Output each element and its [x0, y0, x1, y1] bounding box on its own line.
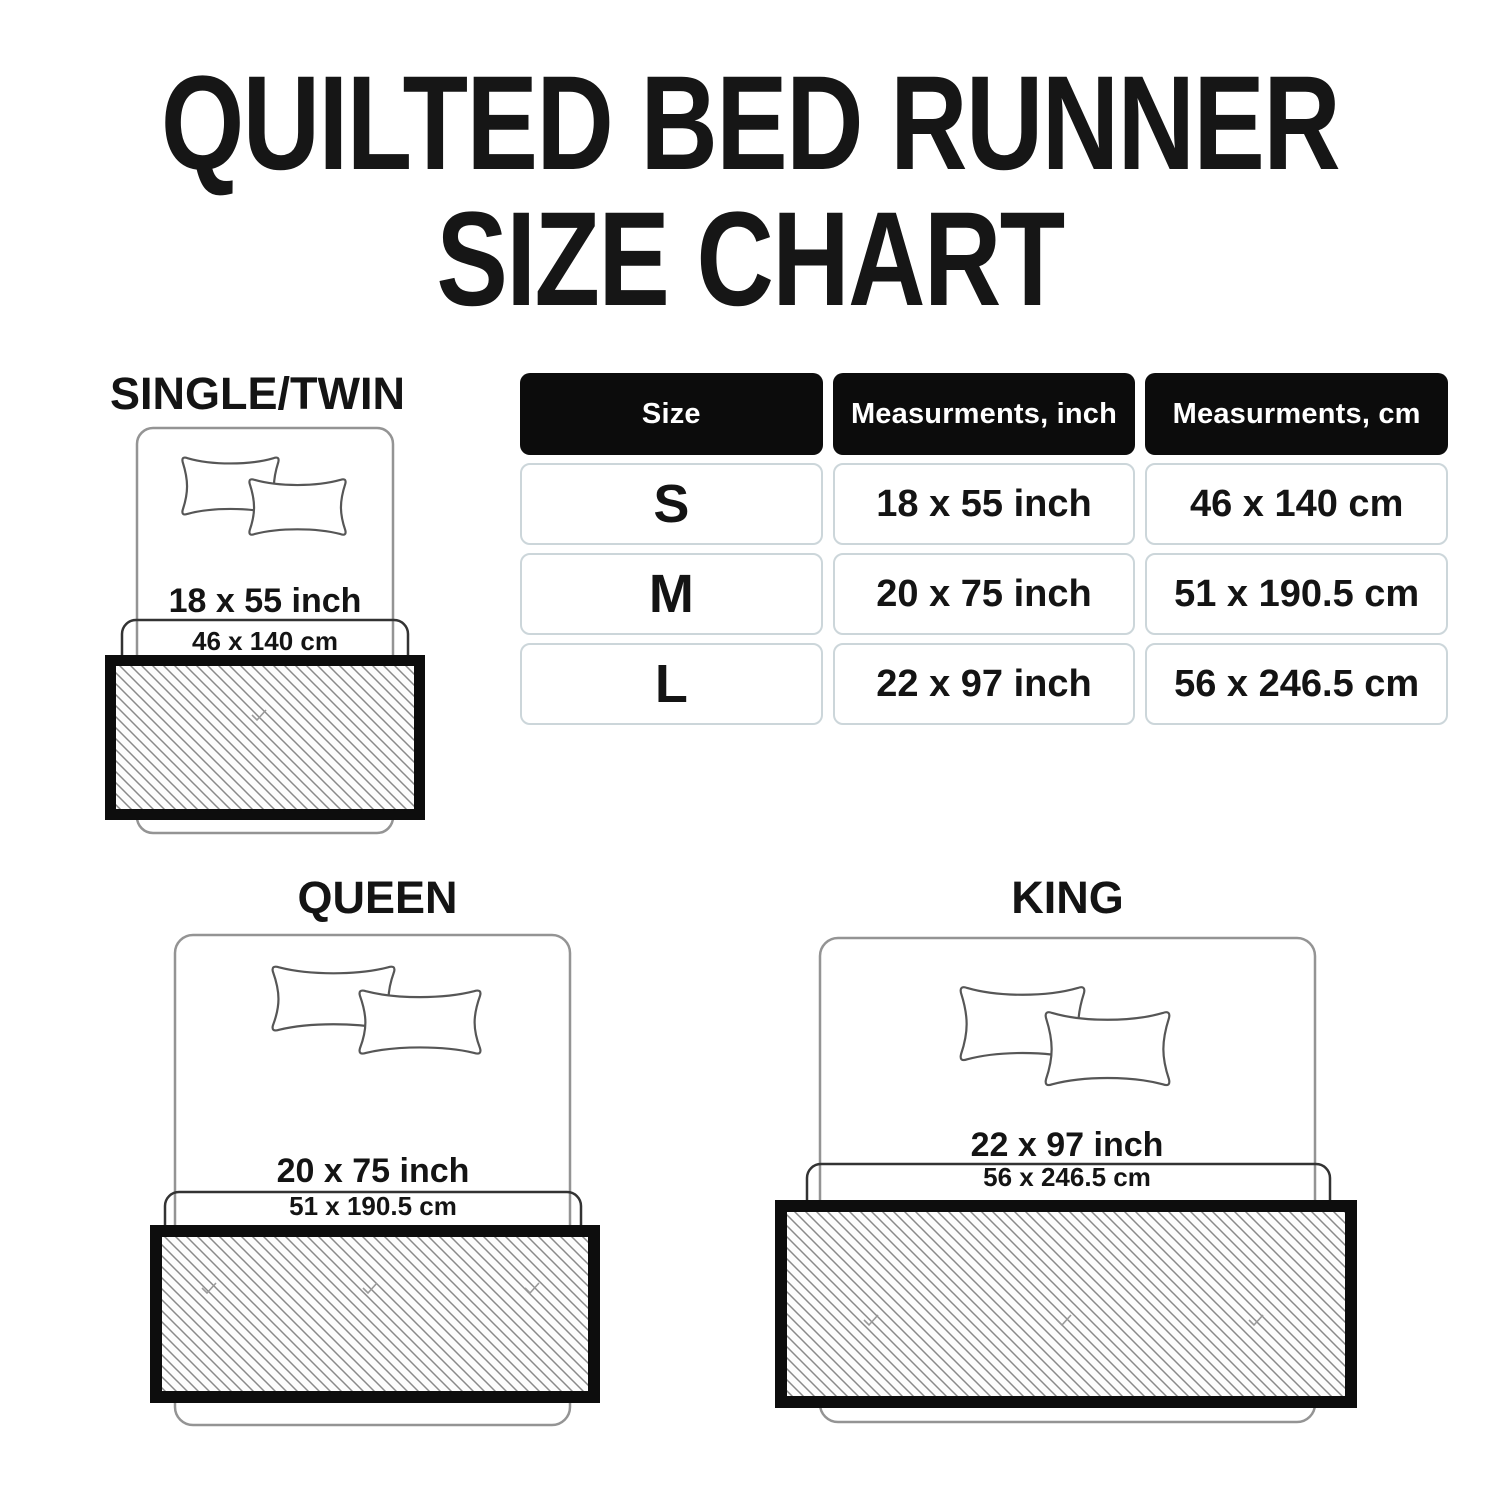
table-cell-s-inch: 18 x 55 inch — [833, 463, 1136, 545]
table-header-cm: Measurments, cm — [1145, 373, 1448, 455]
table-cell-l-cm: 56 x 246.5 cm — [1145, 643, 1448, 725]
page-title-line1: QUILTED BED RUNNER — [150, 56, 1350, 192]
page-title: QUILTED BED RUNNER SIZE CHART — [150, 56, 1350, 328]
table-header-inch: Measurments, inch — [833, 373, 1136, 455]
bed-runner-hatched — [156, 1231, 594, 1397]
single-twin-cm-label: 46 x 140 cm — [192, 626, 338, 656]
size-table: Size Measurments, inch Measurments, cm S… — [520, 373, 1448, 725]
pillow-front-icon — [360, 991, 481, 1054]
bed-runner-hatched — [781, 1206, 1351, 1402]
queen-bed-illustration: 20 x 75 inch 51 x 190.5 cm — [100, 930, 655, 1436]
king-cm-label: 56 x 246.5 cm — [983, 1162, 1151, 1192]
table-header-size: Size — [520, 373, 823, 455]
king-bed-illustration: 22 x 97 inch 56 x 246.5 cm — [755, 930, 1380, 1436]
queen-inch-label: 20 x 75 inch — [277, 1152, 470, 1190]
table-cell-m-cm: 51 x 190.5 cm — [1145, 553, 1448, 635]
table-cell-s-size: S — [520, 463, 823, 545]
queen-cm-label: 51 x 190.5 cm — [289, 1191, 457, 1221]
single-twin-bed-illustration: 18 x 55 inch 46 x 140 cm — [85, 422, 430, 840]
diagram-king-label: KING — [755, 872, 1380, 924]
pillow-front-icon — [1046, 1012, 1170, 1085]
table-cell-m-inch: 20 x 75 inch — [833, 553, 1136, 635]
king-inch-label: 22 x 97 inch — [971, 1126, 1164, 1164]
diagram-queen-label: QUEEN — [100, 872, 655, 924]
table-cell-s-cm: 46 x 140 cm — [1145, 463, 1448, 545]
table-cell-l-size: L — [520, 643, 823, 725]
single-twin-inch-label: 18 x 55 inch — [169, 582, 362, 620]
pillow-front-icon — [249, 479, 345, 534]
diagram-single-twin: SINGLE/TWIN 18 x 55 inch 46 x 140 cm — [85, 368, 430, 846]
bed-runner-hatched — [111, 661, 420, 815]
table-cell-l-inch: 22 x 97 inch — [833, 643, 1136, 725]
diagram-king: KING 22 x 97 inch 56 x 246.5 cm — [755, 872, 1380, 1438]
table-cell-m-size: M — [520, 553, 823, 635]
diagram-queen: QUEEN 20 x 75 inch 51 x 190.5 cm — [100, 872, 655, 1438]
size-chart-infographic: QUILTED BED RUNNER SIZE CHART Size Measu… — [0, 0, 1500, 1500]
diagram-single-twin-label: SINGLE/TWIN — [85, 368, 430, 420]
page-title-line2: SIZE CHART — [150, 192, 1350, 328]
